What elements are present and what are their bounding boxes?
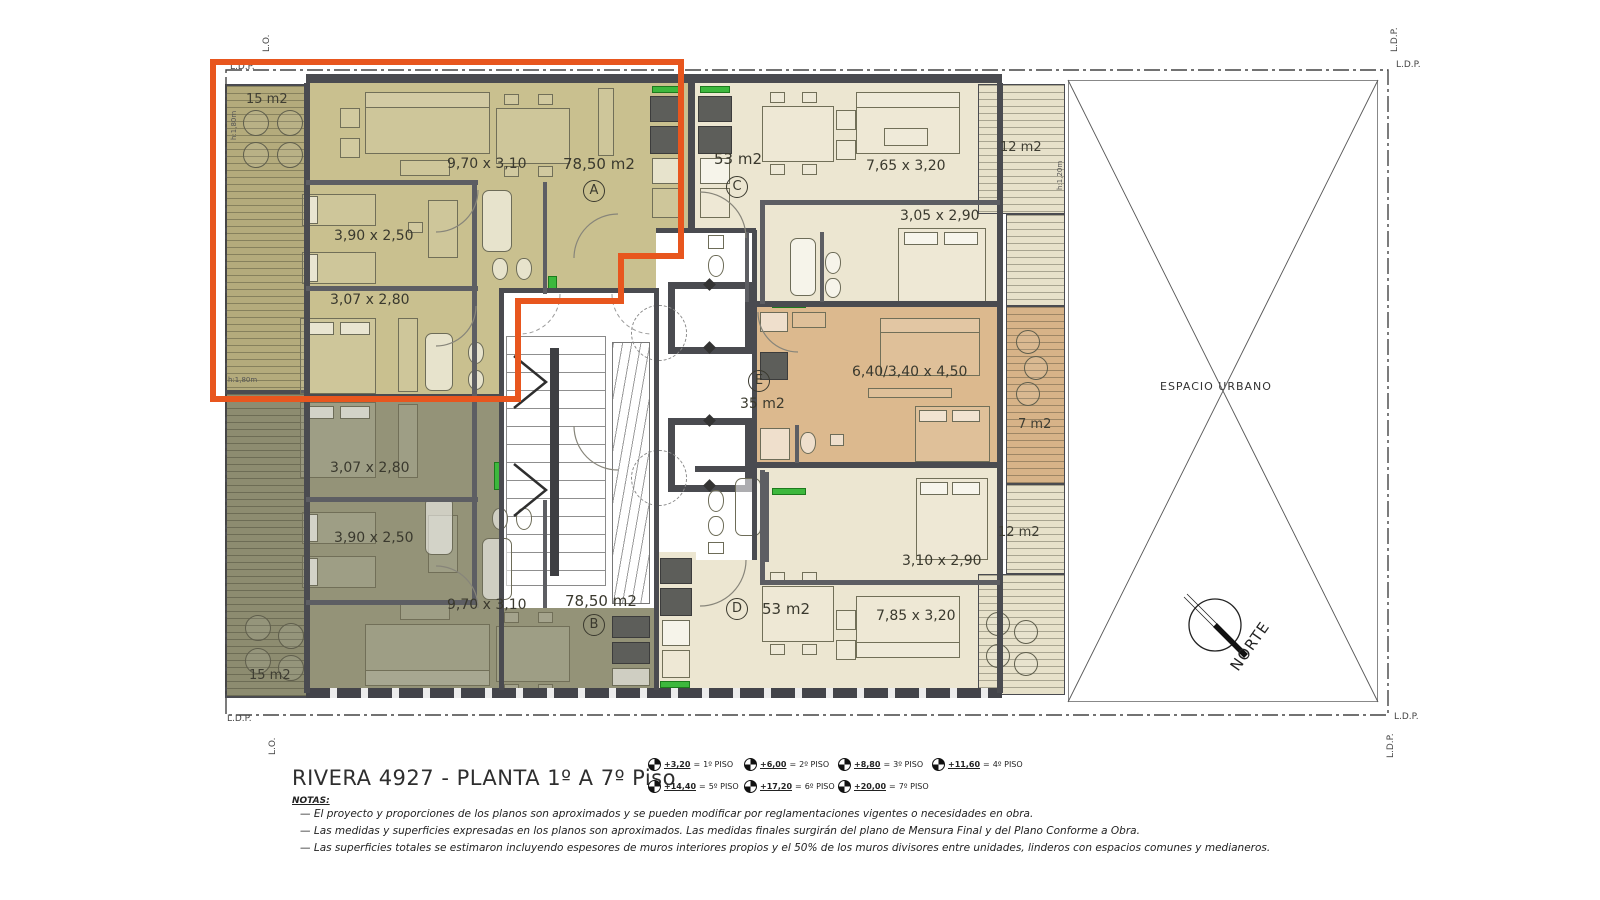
note-1: — El proyecto y proporciones de los plan…	[300, 808, 1033, 820]
ldp-bottom-right: L.D.P.	[1394, 712, 1419, 722]
wall-a-bed1-top	[306, 180, 478, 185]
wall-a-c-divider	[688, 78, 695, 233]
height-label-a: h:1,80m	[228, 376, 257, 384]
sofa-c-back	[856, 92, 960, 108]
wardrobe-a	[398, 318, 418, 392]
level-floor: 2º PISO	[799, 760, 829, 769]
chair-c1	[770, 92, 785, 103]
level-floor: 3º PISO	[893, 760, 923, 769]
area-e: 35 m2	[740, 396, 785, 412]
coffee-table-b	[400, 604, 450, 620]
chair-a1	[504, 94, 519, 105]
balcony-chair-d2	[1014, 620, 1038, 644]
chair-c3	[770, 164, 785, 175]
benchmark-icon	[744, 758, 757, 771]
wall-c-bath2	[820, 232, 824, 302]
balcony-chair-b1	[245, 615, 271, 641]
level-value: +3,20	[664, 760, 690, 769]
sideboard-e	[868, 388, 952, 398]
equals: =	[693, 760, 700, 769]
kitchen-d-stove	[660, 588, 692, 616]
pillow-c1	[904, 232, 938, 245]
sofa-a-back	[365, 92, 490, 108]
notas-label: NOTAS:	[292, 796, 330, 806]
kitchen-e-sink	[760, 312, 788, 332]
wall-c-bath1	[745, 232, 749, 302]
chair-b2	[538, 612, 553, 623]
sofa-e-back	[880, 318, 980, 333]
chair-c4	[802, 164, 817, 175]
equals: =	[889, 782, 896, 791]
bidet-c2	[825, 278, 841, 298]
kitchen-a-fridge	[652, 188, 682, 218]
level-marker-3: +8,80 = 3º PISO	[838, 758, 923, 771]
level-marker-5: +14,40 = 5º PISO	[648, 780, 739, 793]
balcony-a-label: 15 m2	[246, 92, 288, 107]
bathtub-b2	[425, 497, 453, 555]
armchair-a1	[340, 108, 360, 128]
balcony-d-label: 12 m2	[998, 525, 1040, 540]
floor-plan-canvas: 9,70 x 3,10 78,50 m2 A 3,90 x 2,50 3,07 …	[0, 0, 1600, 900]
level-floor: 5º PISO	[709, 782, 739, 791]
wall-right	[997, 83, 1003, 693]
level-marker-4: +11,60 = 4º PISO	[932, 758, 1023, 771]
toilet-d	[708, 490, 724, 512]
wall-b-beds-right	[472, 400, 477, 602]
equals: =	[795, 782, 802, 791]
lo-top-left: L.O.	[262, 35, 272, 52]
wall-a-beds-right	[472, 180, 477, 396]
plan-title: RIVERA 4927 - PLANTA 1º A 7º Piso	[292, 766, 676, 790]
balcony-e-label: 7 m2	[1018, 417, 1051, 432]
area-b: 78,50 m2	[565, 592, 637, 610]
sink-e	[830, 434, 844, 446]
ldp-top-right: L.D.P.	[1396, 60, 1421, 70]
height-label-left: h:1,80m	[230, 111, 238, 140]
wall-core-top	[499, 288, 659, 293]
balcony-c-label: 12 m2	[1000, 140, 1042, 155]
wall-d-bath-right	[765, 472, 769, 562]
wall-c-bed-top	[760, 200, 1000, 205]
armchair-d1	[836, 610, 856, 630]
kitchen-b-stove	[612, 642, 650, 664]
wall-d-top-left	[695, 466, 757, 472]
coffee-table-a	[400, 160, 450, 176]
balcony-chair-e2	[1024, 356, 1048, 380]
balcony-chair-e1	[1016, 330, 1040, 354]
ldp-bottom-right-vert: L.D.P.	[1386, 733, 1396, 758]
sink-d	[708, 542, 724, 554]
pillow-e1	[919, 410, 947, 422]
equals: =	[883, 760, 890, 769]
level-floor: 7º PISO	[899, 782, 929, 791]
wall-e-bath	[795, 425, 799, 463]
dim-d-bed: 3,10 x 2,90	[902, 553, 982, 569]
level-floor: 1º PISO	[703, 760, 733, 769]
chair-b1	[504, 612, 519, 623]
level-value: +11,60	[948, 760, 980, 769]
level-floor: 6º PISO	[805, 782, 835, 791]
note-3: — Las superficies totales se estimaron i…	[300, 842, 1270, 854]
pillow-d2	[952, 482, 980, 495]
plant-e-bottom	[772, 488, 806, 495]
area-a: 78,50 m2	[563, 155, 635, 173]
chair-c2	[802, 92, 817, 103]
stair-handrail	[550, 348, 559, 576]
armchair-a2	[340, 138, 360, 158]
wall-core-right	[654, 288, 659, 690]
chair-d3	[770, 644, 785, 655]
bidet-b1	[516, 508, 532, 530]
pillow-c2	[944, 232, 978, 245]
bidet-a1	[516, 258, 532, 280]
kitchen-d-fridge	[662, 650, 690, 678]
ldp-top-left: L.D.P.	[230, 62, 255, 72]
balcony-chair-a3	[243, 142, 269, 168]
toilet-c	[708, 255, 724, 277]
equals: =	[699, 782, 706, 791]
bathtub-d	[735, 478, 761, 536]
balcony-chair-a4	[277, 142, 303, 168]
level-value: +14,40	[664, 782, 696, 791]
kitchen-d-counter	[660, 558, 692, 584]
level-marker-7: +20,00 = 7º PISO	[838, 780, 929, 793]
level-value: +6,00	[760, 760, 786, 769]
chair-d4	[802, 644, 817, 655]
benchmark-icon	[838, 758, 851, 771]
shower-e	[760, 428, 790, 460]
wall-e-left	[752, 230, 757, 560]
unit-a-letter: A	[583, 180, 605, 202]
kitchen-c-fridge	[700, 188, 730, 218]
turning-circle-2	[631, 450, 687, 506]
lo-bottom-left: L.O.	[268, 738, 278, 755]
level-value: +20,00	[854, 782, 886, 791]
kitchen-b-sink	[612, 668, 650, 686]
dim-d-living: 7,85 x 3,20	[876, 608, 956, 624]
height-label-right: h:1,20m	[1056, 161, 1064, 190]
sink-c	[708, 235, 724, 249]
kitchen-a-sink	[652, 158, 682, 184]
dim-b-bed1: 3,90 x 2,50	[334, 530, 414, 546]
toilet-c2	[825, 252, 841, 274]
kitchen-b-counter	[612, 616, 650, 638]
wall-c-bed-left	[760, 200, 765, 304]
bathtub-a1	[482, 190, 512, 252]
sofa-d-back	[856, 642, 960, 658]
level-marker-6: +17,20 = 6º PISO	[744, 780, 835, 793]
benchmark-icon	[744, 780, 757, 793]
dining-table-c	[762, 106, 834, 162]
balcony-chair-e3	[1016, 382, 1040, 406]
kitchen-e-counter	[792, 312, 826, 328]
plant-c-kitchen	[700, 86, 730, 93]
balcony-chair-a2	[277, 110, 303, 136]
unit-b-letter: B	[583, 614, 605, 636]
balcony-chair-d4	[1014, 652, 1038, 676]
toilet-e	[800, 432, 816, 454]
toilet-a1	[492, 258, 508, 280]
note-2: — Las medidas y superficies expresadas e…	[300, 825, 1140, 837]
equals: =	[789, 760, 796, 769]
level-value: +8,80	[854, 760, 880, 769]
area-d: 53 m2	[762, 600, 810, 618]
benchmark-icon	[838, 780, 851, 793]
sofa-b-back	[365, 670, 490, 686]
plant-a-kitchen	[652, 86, 682, 93]
area-c: 53 m2	[714, 150, 762, 168]
bidet-d	[708, 516, 724, 536]
dim-a-living: 9,70 x 3,10	[447, 156, 527, 172]
armchair-c2	[836, 140, 856, 160]
balcony-b-label: 15 m2	[249, 668, 291, 683]
level-marker-1: +3,20 = 1º PISO	[648, 758, 733, 771]
wall-b-bed-mid1	[306, 497, 478, 502]
wall-e-top	[756, 301, 998, 307]
desk-a	[428, 200, 458, 258]
kitchen-a-stove	[650, 126, 684, 154]
equals: =	[983, 760, 990, 769]
wall-e-bottom	[756, 462, 998, 468]
ldp-top-right-vert: L.D.P.	[1390, 27, 1400, 52]
kitchen-d-sink	[662, 620, 690, 646]
pillow-b4	[340, 406, 370, 419]
kitchen-c-counter	[698, 96, 732, 122]
dim-b-living: 9,70 x 3,10	[447, 597, 527, 613]
chair-a4	[538, 166, 553, 177]
armchair-d2	[836, 640, 856, 660]
plant-d-kitchen	[660, 681, 690, 688]
tv-console-a	[598, 88, 614, 156]
wall-a-bed2-top	[306, 286, 478, 291]
benchmark-icon	[932, 758, 945, 771]
bathtub-c	[790, 238, 816, 296]
dim-c-bed: 3,05 x 2,90	[900, 208, 980, 224]
balcony-chair-a1	[243, 110, 269, 136]
turning-circle-1	[631, 305, 687, 361]
unit-e-letter: E	[748, 370, 770, 392]
level-floor: 4º PISO	[993, 760, 1023, 769]
dining-table-b	[496, 626, 570, 682]
unit-d-letter: D	[726, 598, 748, 620]
ldp-bottom-left: L.D.P.	[227, 714, 252, 724]
unit-c-letter: C	[726, 176, 748, 198]
balcony-chair-b2	[278, 623, 304, 649]
chair-a2	[538, 94, 553, 105]
dim-e: 6,40/3,40 x 4,50	[852, 364, 967, 380]
bathtub-b1	[482, 538, 512, 600]
wall-a-bath-right	[543, 182, 547, 294]
level-value: +17,20	[760, 782, 792, 791]
pillow-d1	[920, 482, 948, 495]
bathtub-a2	[425, 333, 453, 391]
espacio-urbano-label: ESPACIO URBANO	[1160, 380, 1272, 393]
armchair-c1	[836, 110, 856, 130]
kitchen-a-counter	[650, 96, 684, 122]
benchmark-icon	[648, 758, 661, 771]
wall-lobby-top	[656, 228, 756, 233]
wall-d-bed-bottom	[760, 580, 1000, 585]
dim-c-living: 7,65 x 3,20	[866, 158, 946, 174]
dim-a-bed2: 3,07 x 2,80	[330, 292, 410, 308]
pillow-a4	[340, 322, 370, 335]
benchmark-icon	[648, 780, 661, 793]
level-marker-2: +6,00 = 2º PISO	[744, 758, 829, 771]
wall-top	[306, 74, 1002, 83]
pillow-e2	[952, 410, 980, 422]
wall-b-bath-right	[543, 500, 547, 608]
dim-b-bed2: 3,07 x 2,80	[330, 460, 410, 476]
dim-a-bed1: 3,90 x 2,50	[334, 228, 414, 244]
wall-core-left	[499, 290, 504, 690]
coffee-table-c	[884, 128, 928, 146]
balcony-strip-mid-top	[1006, 214, 1065, 306]
